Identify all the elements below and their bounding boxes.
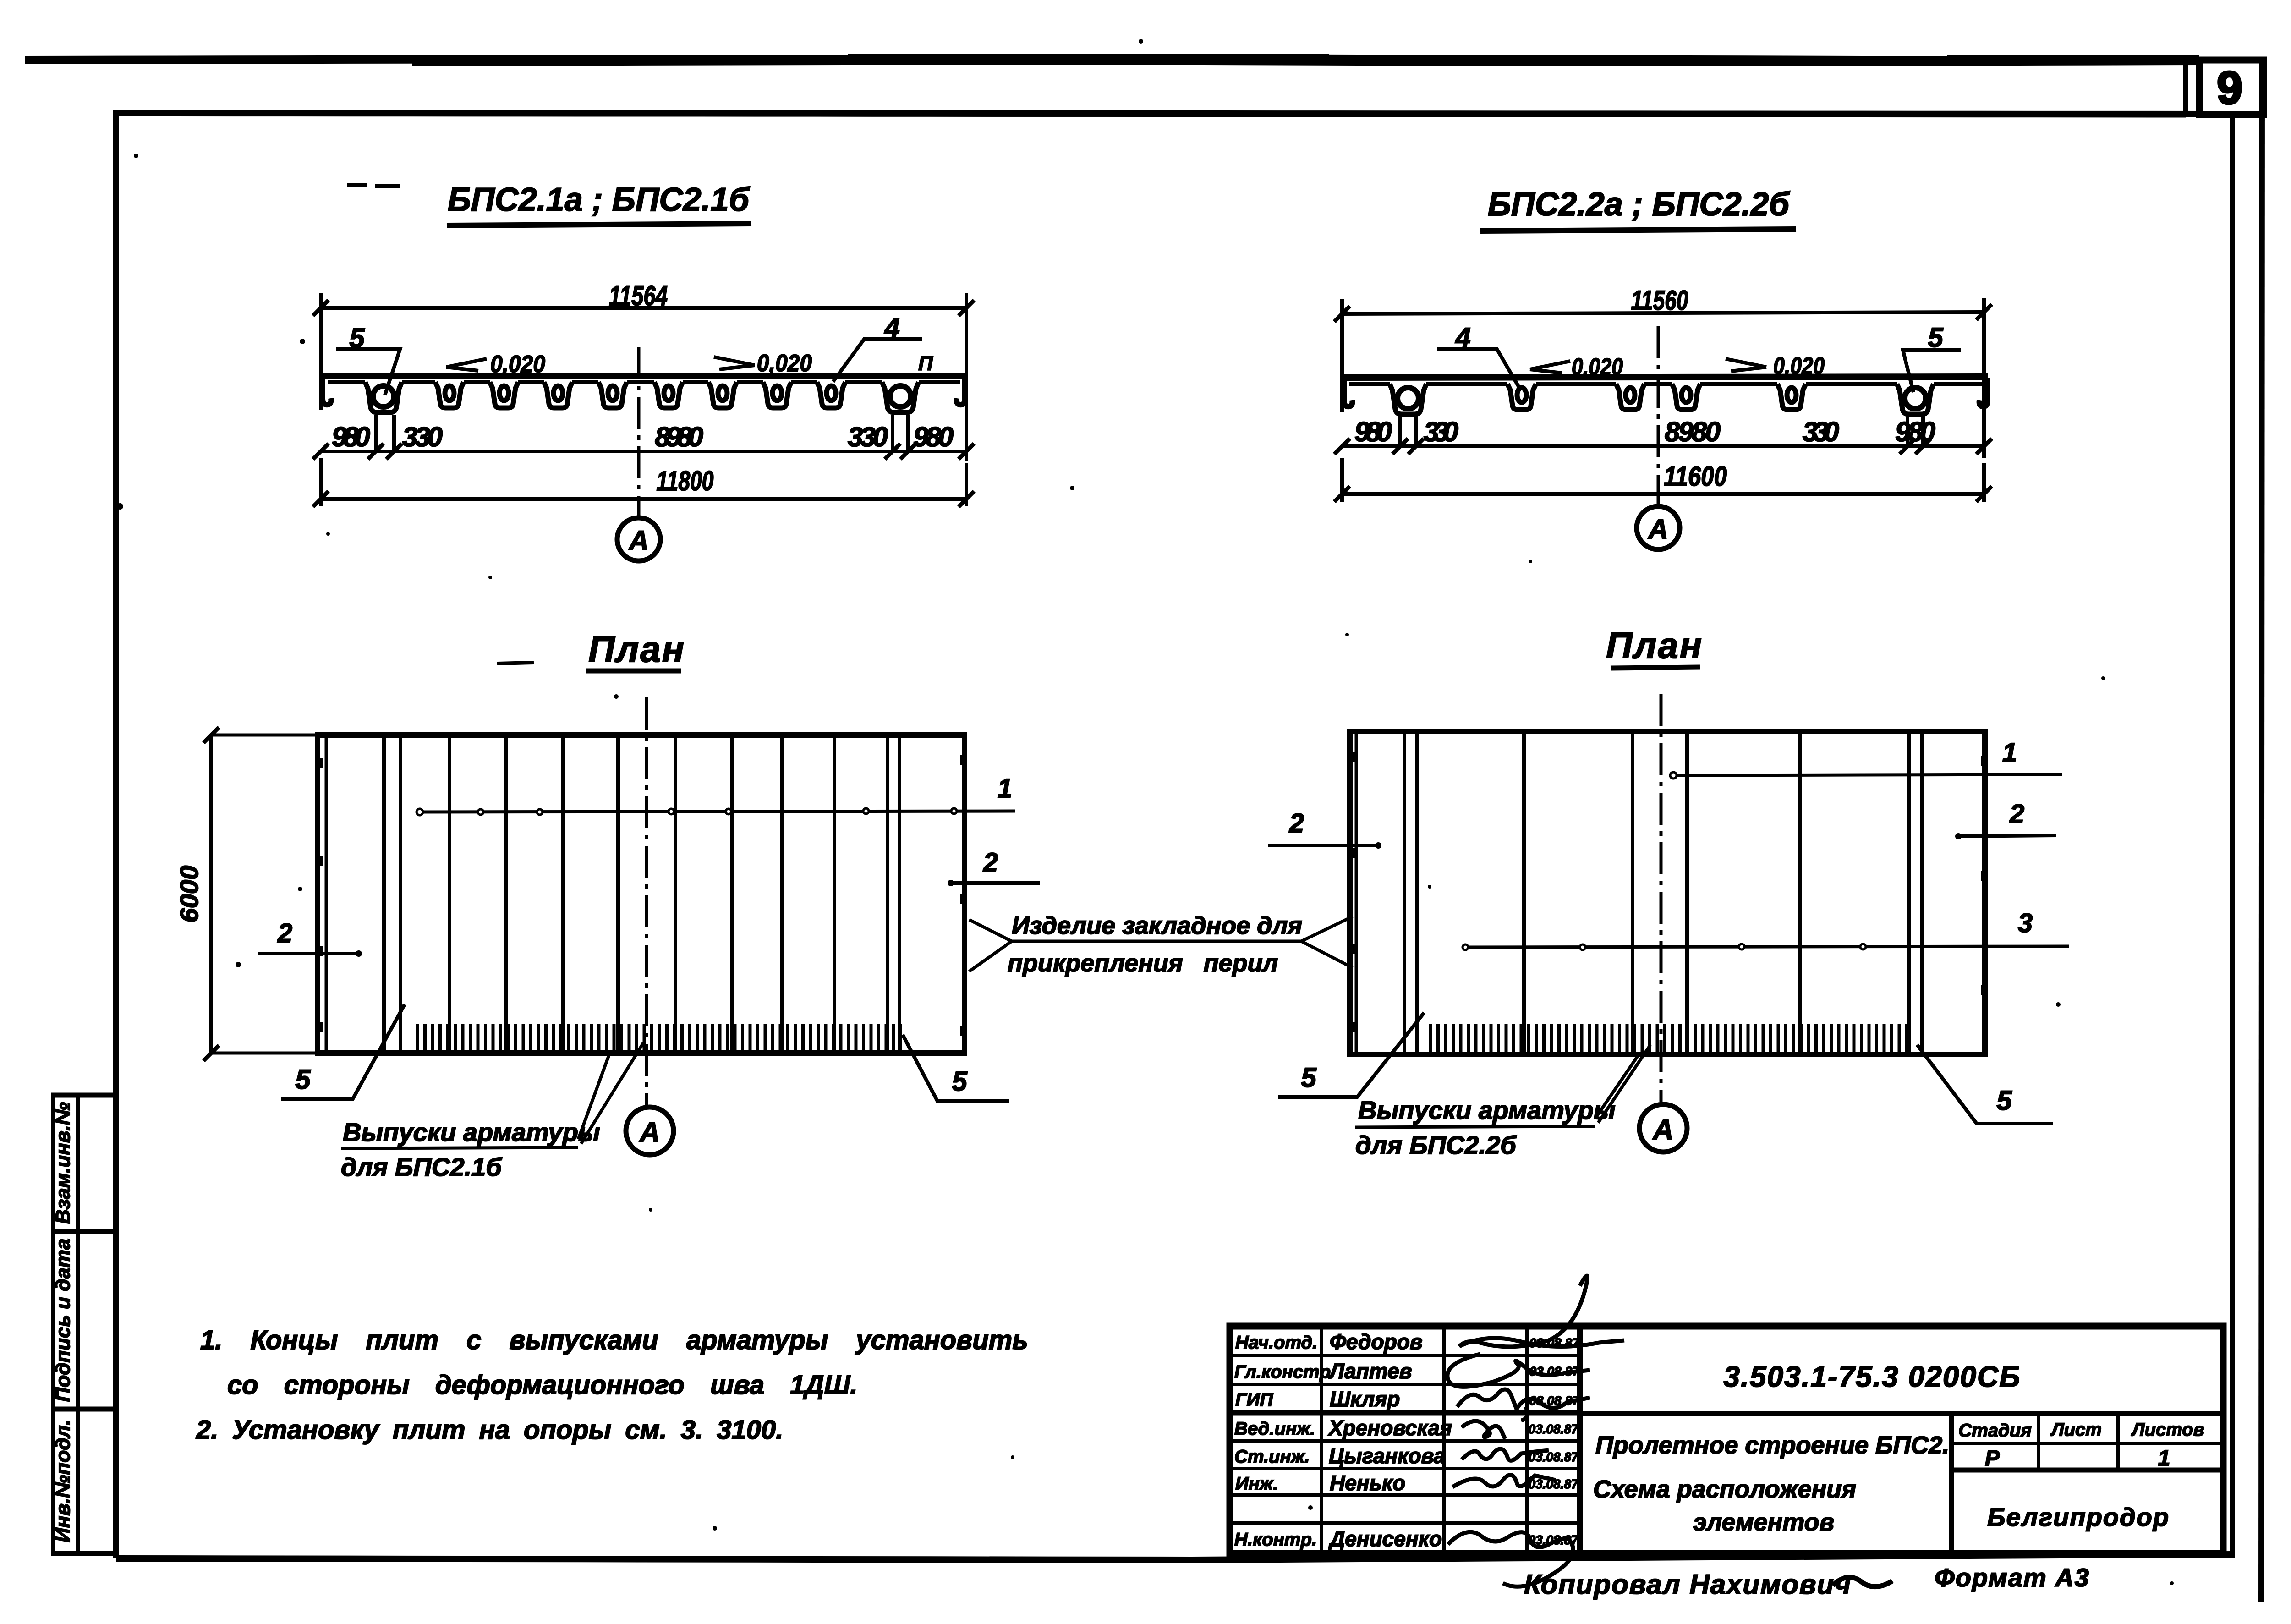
svg-text:11800: 11800 bbox=[657, 466, 714, 496]
svg-text:Выпуски арматуры: Выпуски арматуры bbox=[1358, 1096, 1616, 1125]
svg-text:6000: 6000 bbox=[175, 866, 203, 923]
svg-text:ГИП: ГИП bbox=[1235, 1390, 1273, 1410]
svg-text:8980: 8980 bbox=[655, 422, 703, 452]
svg-text:БПС2.2а ; БПС2.2б: БПС2.2а ; БПС2.2б bbox=[1488, 186, 1791, 223]
svg-text:5: 5 bbox=[1996, 1085, 2012, 1116]
svg-text:План: План bbox=[1606, 625, 1703, 666]
svg-text:1: 1 bbox=[2002, 738, 2017, 768]
svg-text:Н.контр.: Н.контр. bbox=[1234, 1530, 1317, 1550]
svg-text:980: 980 bbox=[1895, 417, 1935, 447]
svg-text:Цыганкова: Цыганкова bbox=[1329, 1444, 1445, 1468]
svg-text:БПС2.1а ; БПС2.1б: БПС2.1а ; БПС2.1б bbox=[448, 181, 751, 218]
svg-text:Шкляр: Шкляр bbox=[1330, 1387, 1400, 1411]
svg-text:330: 330 bbox=[1803, 417, 1839, 447]
svg-text:Лаптев: Лаптев bbox=[1328, 1359, 1412, 1383]
svg-text:3.503.1-75.3 0200СБ: 3.503.1-75.3 0200СБ bbox=[1723, 1360, 2021, 1393]
svg-text:Листов: Листов bbox=[2131, 1420, 2204, 1440]
svg-text:Хреновская: Хреновская bbox=[1327, 1416, 1452, 1440]
svg-text:для БПС2.1б: для БПС2.1б bbox=[341, 1152, 502, 1181]
svg-text:0,020: 0,020 bbox=[490, 351, 545, 378]
svg-text:А: А bbox=[628, 525, 648, 556]
svg-text:План: План bbox=[588, 629, 685, 669]
svg-text:Пролетное строение БПС2.: Пролетное строение БПС2. bbox=[1595, 1432, 1949, 1459]
svg-text:Копировал Нахимович: Копировал Нахимович bbox=[1524, 1569, 1852, 1600]
svg-text:330: 330 bbox=[848, 422, 888, 452]
svg-text:3: 3 bbox=[2018, 908, 2033, 938]
svg-text:элементов: элементов bbox=[1693, 1509, 1834, 1536]
svg-text:Взам.инв.№: Взам.инв.№ bbox=[52, 1102, 74, 1224]
svg-text:А: А bbox=[1652, 1114, 1674, 1146]
svg-text:Изделие закладное для: Изделие закладное для bbox=[1012, 912, 1302, 939]
svg-text:со стороны деформационного шва: со стороны деформационного шва 1ДШ. bbox=[227, 1370, 857, 1400]
svg-text:Инж.: Инж. bbox=[1235, 1474, 1278, 1494]
svg-text:5: 5 bbox=[1301, 1062, 1317, 1093]
svg-text:Выпуски арматуры: Выпуски арматуры bbox=[343, 1118, 600, 1147]
svg-text:5: 5 bbox=[1928, 322, 1944, 353]
svg-text:А: А bbox=[639, 1117, 660, 1148]
svg-text:2: 2 bbox=[277, 918, 292, 948]
svg-text:0,020: 0,020 bbox=[1572, 354, 1623, 380]
svg-text:Гл.констр: Гл.констр bbox=[1234, 1362, 1331, 1382]
svg-text:330: 330 bbox=[1424, 417, 1458, 447]
svg-text:Ненько: Ненько bbox=[1330, 1471, 1405, 1495]
svg-text:1: 1 bbox=[2158, 1446, 2170, 1470]
svg-text:0,020: 0,020 bbox=[757, 350, 812, 377]
svg-text:для БПС2.2б: для БПС2.2б bbox=[1355, 1130, 1517, 1159]
svg-text:2: 2 bbox=[983, 848, 998, 878]
svg-text:Ст.инж.: Ст.инж. bbox=[1234, 1447, 1310, 1467]
svg-text:Лист: Лист bbox=[2050, 1420, 2102, 1440]
svg-text:Формат А3: Формат А3 bbox=[1935, 1563, 2090, 1592]
svg-text:Денисенко: Денисенко bbox=[1328, 1527, 1442, 1551]
svg-text:1: 1 bbox=[998, 774, 1012, 803]
svg-text:980: 980 bbox=[913, 422, 954, 452]
svg-text:2. Установку плит на опоры см.: 2. Установку плит на опоры см. 3. 3100. bbox=[196, 1415, 783, 1445]
svg-text:А: А bbox=[1647, 514, 1668, 544]
svg-text:2: 2 bbox=[1289, 808, 1304, 838]
svg-text:прикрепления перил: прикрепления перил bbox=[1008, 949, 1278, 977]
svg-text:1. Концы плит с выпусками арма: 1. Концы плит с выпусками арматуры устан… bbox=[200, 1325, 1028, 1355]
svg-text:5: 5 bbox=[952, 1066, 968, 1097]
svg-text:Подпись и дата: Подпись и дата bbox=[52, 1239, 74, 1402]
svg-text:Р: Р bbox=[1985, 1446, 2000, 1470]
svg-text:2: 2 bbox=[2009, 799, 2024, 829]
svg-text:Схема расположения: Схема расположения bbox=[1593, 1476, 1856, 1503]
svg-text:9: 9 bbox=[2217, 62, 2242, 114]
svg-text:330: 330 bbox=[402, 422, 443, 452]
svg-text:8980: 8980 bbox=[1665, 417, 1721, 447]
svg-text:11600: 11600 bbox=[1664, 461, 1727, 492]
svg-text:980: 980 bbox=[1354, 417, 1392, 447]
svg-text:5: 5 bbox=[295, 1064, 311, 1095]
svg-text:980: 980 bbox=[332, 422, 370, 452]
svg-text:Инв.№подл.: Инв.№подл. bbox=[52, 1420, 74, 1542]
svg-text:03.08.87: 03.08.87 bbox=[1529, 1422, 1579, 1436]
svg-text:Стадия: Стадия bbox=[1958, 1421, 2031, 1441]
svg-text:Белгипродор: Белгипродор bbox=[1987, 1503, 2170, 1531]
svg-text:Вед.инж.: Вед.инж. bbox=[1234, 1419, 1315, 1439]
svg-text:П: П bbox=[918, 352, 933, 375]
svg-text:Нач.отд.: Нач.отд. bbox=[1235, 1333, 1317, 1353]
svg-text:Федоров: Федоров bbox=[1330, 1330, 1423, 1354]
svg-text:0,020: 0,020 bbox=[1773, 353, 1825, 379]
